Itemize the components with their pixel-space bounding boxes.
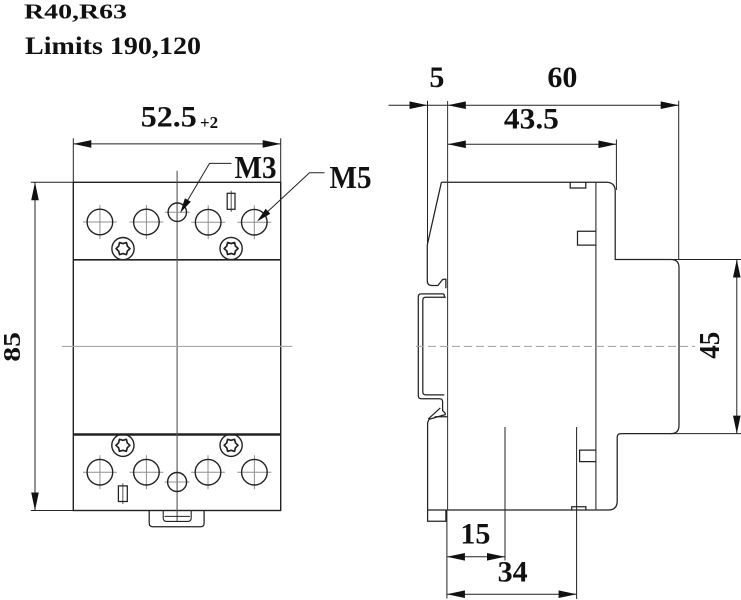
svg-text:85: 85: [0, 332, 26, 362]
svg-text:43.5: 43.5: [504, 103, 559, 136]
svg-text:5: 5: [429, 61, 444, 94]
svg-text:R40,R63: R40,R63: [24, 0, 127, 24]
svg-text:+2: +2: [200, 113, 218, 132]
svg-text:Limits 190,120: Limits 190,120: [25, 31, 201, 60]
svg-text:45: 45: [695, 332, 726, 359]
svg-text:M3: M3: [235, 149, 277, 185]
svg-text:15: 15: [460, 518, 490, 551]
svg-text:M5: M5: [330, 159, 372, 195]
svg-text:52.5: 52.5: [141, 101, 197, 134]
svg-text:34: 34: [498, 556, 528, 589]
svg-text:60: 60: [547, 61, 577, 94]
